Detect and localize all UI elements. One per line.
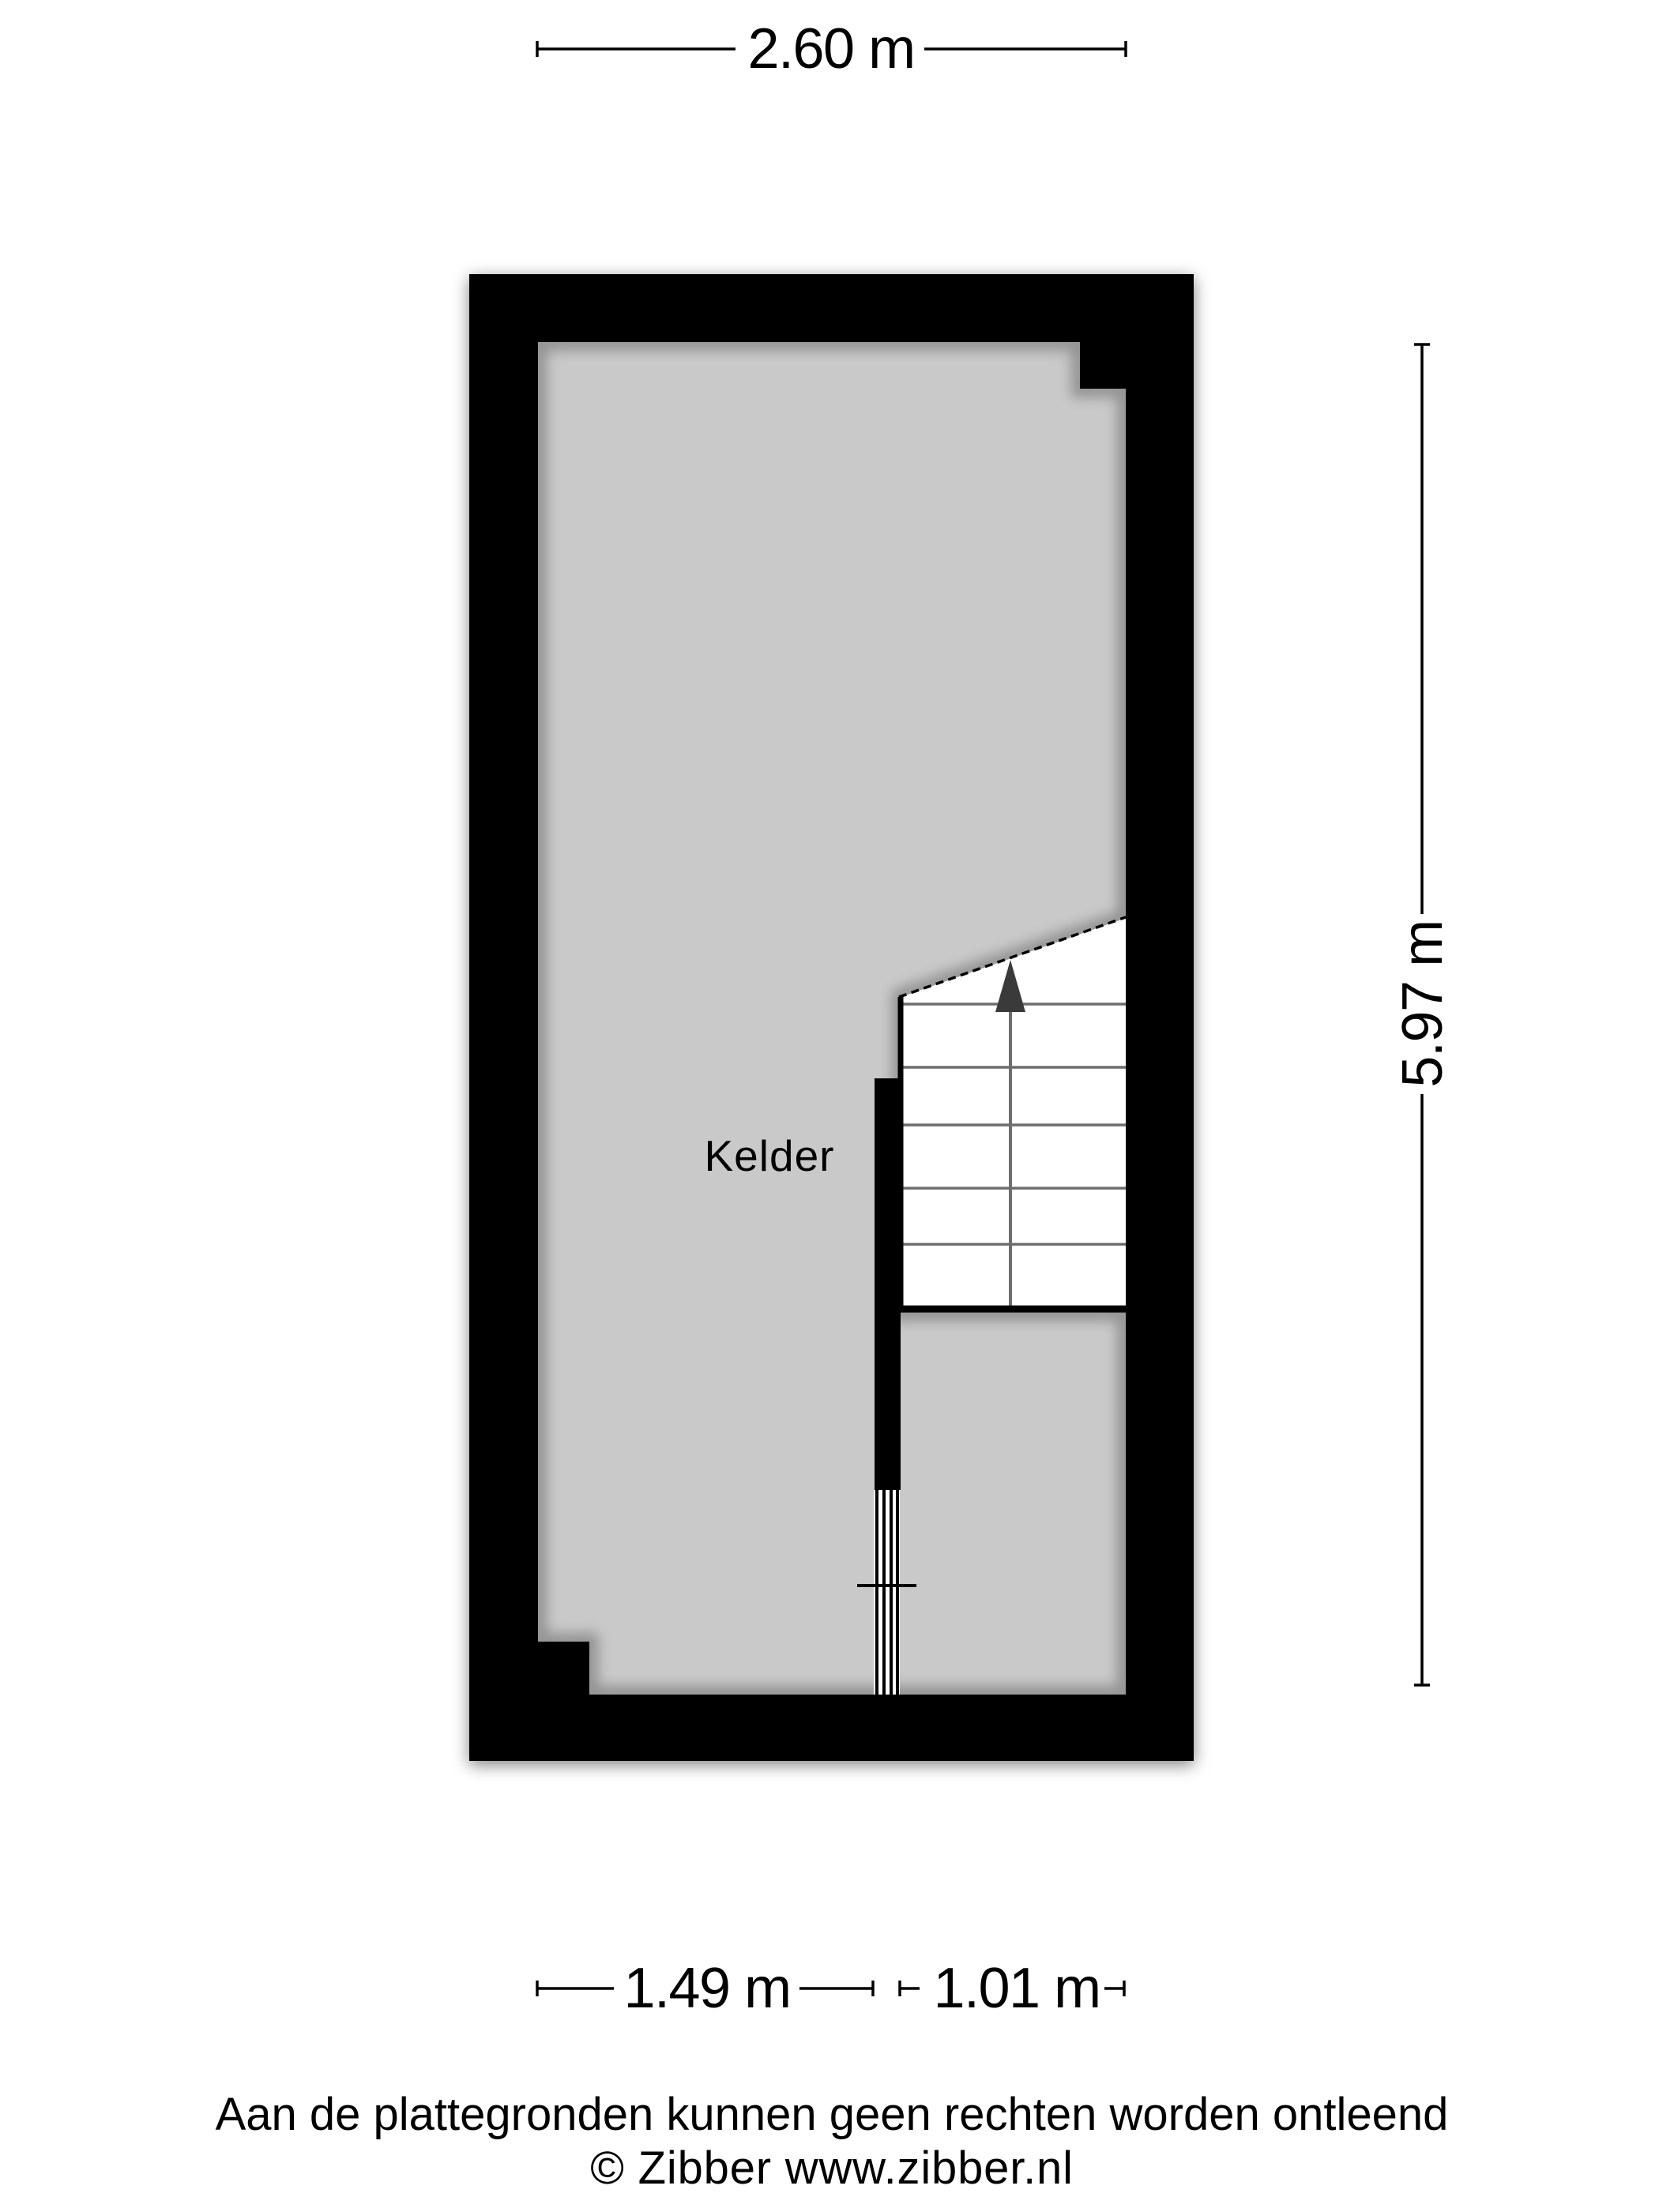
svg-text:2.60 m: 2.60 m	[747, 17, 914, 81]
svg-text:© Zibber www.zibber.nl: © Zibber www.zibber.nl	[590, 2142, 1074, 2194]
svg-text:1.01 m: 1.01 m	[933, 1957, 1100, 2020]
svg-text:Aan de plattegronden kunnen ge: Aan de plattegronden kunnen geen rechten…	[216, 2089, 1449, 2140]
svg-text:Kelder: Kelder	[705, 1131, 835, 1180]
svg-text:1.49 m: 1.49 m	[623, 1957, 790, 2020]
svg-text:5.97 m: 5.97 m	[1391, 920, 1454, 1087]
